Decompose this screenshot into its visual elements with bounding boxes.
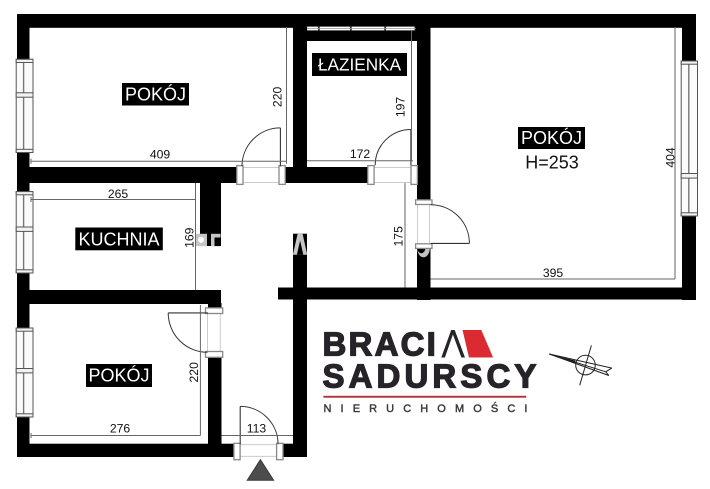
svg-text:409: 409 [150,148,171,162]
svg-text:POKÓJ: POKÓJ [88,365,149,386]
svg-text:220: 220 [271,87,285,108]
svg-text:395: 395 [543,266,564,280]
svg-text:H=253: H=253 [525,153,579,173]
svg-text:404: 404 [663,147,677,168]
svg-text:175: 175 [391,226,405,247]
svg-text:276: 276 [110,422,131,436]
svg-text:POKÓJ: POKÓJ [521,127,582,148]
svg-text:POKÓJ: POKÓJ [125,84,186,105]
svg-text:265: 265 [108,187,129,201]
svg-text:NIERUCHOMOŚCI: NIERUCHOMOŚCI [324,402,537,415]
svg-text:KUCHNIA: KUCHNIA [78,230,159,250]
svg-text:SADURSCY: SADURSCY [323,358,541,395]
svg-text:113: 113 [247,422,267,436]
svg-text:ŁAZIENKA: ŁAZIENKA [318,55,402,75]
svg-text:169: 169 [182,227,196,248]
svg-text:220: 220 [187,362,201,383]
svg-text:172: 172 [350,147,371,161]
svg-text:197: 197 [394,97,408,118]
